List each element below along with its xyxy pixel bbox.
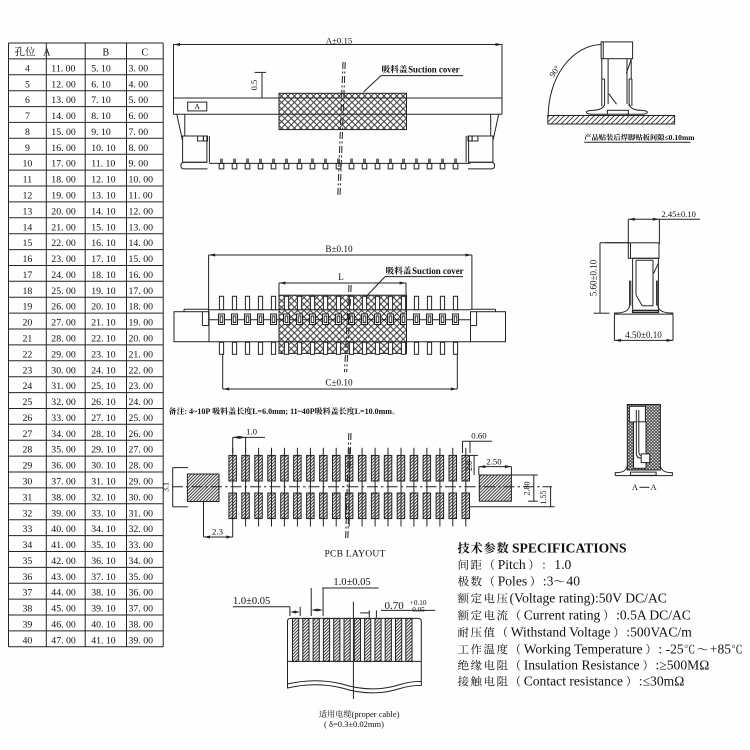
- svg-text:2.80: 2.80: [523, 482, 532, 496]
- svg-text:21. 00: 21. 00: [129, 349, 154, 360]
- svg-text:21. 00: 21. 00: [51, 222, 76, 233]
- svg-text:20: 20: [23, 318, 33, 329]
- svg-text:C: C: [141, 47, 148, 58]
- svg-text:38: 38: [23, 604, 33, 615]
- svg-text:5. 00: 5. 00: [129, 95, 149, 106]
- svg-text:32. 10: 32. 10: [91, 492, 116, 503]
- svg-text:5: 5: [25, 79, 30, 90]
- svg-text:46. 00: 46. 00: [51, 620, 76, 631]
- svg-text:11. 00: 11. 00: [129, 191, 153, 202]
- svg-text:30. 10: 30. 10: [91, 461, 116, 472]
- svg-text:25. 00: 25. 00: [51, 286, 76, 297]
- svg-text:10. 10: 10. 10: [91, 143, 116, 154]
- svg-text:32: 32: [23, 508, 33, 519]
- svg-text:15. 10: 15. 10: [91, 222, 116, 233]
- svg-text:10. 00: 10. 00: [129, 175, 154, 186]
- svg-text:33. 00: 33. 00: [129, 540, 154, 551]
- svg-text:1.55: 1.55: [539, 491, 548, 505]
- svg-text:22: 22: [23, 349, 33, 360]
- svg-text:10: 10: [23, 159, 33, 170]
- svg-text:40. 10: 40. 10: [91, 620, 116, 631]
- svg-text:9: 9: [25, 143, 30, 154]
- svg-text:32. 00: 32. 00: [129, 524, 154, 535]
- svg-text:27. 00: 27. 00: [51, 318, 76, 329]
- svg-text::500VAC/m: :500VAC/m: [626, 625, 692, 640]
- svg-text:34. 00: 34. 00: [51, 429, 76, 440]
- svg-text:6. 10: 6. 10: [91, 79, 111, 90]
- svg-text:2.50: 2.50: [486, 457, 502, 467]
- svg-text:31. 00: 31. 00: [129, 508, 154, 519]
- svg-text:38. 10: 38. 10: [91, 588, 116, 599]
- svg-text:30. 00: 30. 00: [129, 492, 154, 503]
- svg-text:28: 28: [23, 445, 33, 456]
- svg-text:27: 27: [23, 429, 33, 440]
- svg-text:12. 10: 12. 10: [91, 175, 116, 186]
- svg-text:7: 7: [25, 111, 30, 122]
- svg-text:35. 10: 35. 10: [91, 540, 116, 551]
- svg-text:41. 10: 41. 10: [91, 635, 116, 646]
- svg-text:5.60±0.10: 5.60±0.10: [589, 259, 599, 296]
- svg-text:22. 00: 22. 00: [51, 238, 76, 249]
- svg-text:Withstand Voltage: Withstand Voltage: [511, 625, 611, 640]
- svg-text:33: 33: [23, 524, 33, 535]
- svg-text:+85: +85: [710, 642, 731, 657]
- svg-text:15: 15: [23, 238, 33, 249]
- svg-text:29. 00: 29. 00: [51, 349, 76, 360]
- svg-text:7. 00: 7. 00: [129, 127, 149, 138]
- svg-text:14. 10: 14. 10: [91, 206, 116, 217]
- svg-text:12: 12: [23, 191, 33, 202]
- svg-text:4: 4: [25, 63, 30, 74]
- svg-text:16. 00: 16. 00: [51, 143, 76, 154]
- svg-text:19. 00: 19. 00: [51, 191, 76, 202]
- svg-text:Suction cover: Suction cover: [408, 64, 460, 74]
- svg-text:16. 00: 16. 00: [129, 270, 154, 281]
- svg-text:38. 00: 38. 00: [51, 492, 76, 503]
- svg-text:A: A: [632, 482, 639, 492]
- svg-text:Current rating: Current rating: [524, 608, 601, 623]
- svg-text:40. 00: 40. 00: [51, 524, 76, 535]
- svg-text:35. 00: 35. 00: [129, 572, 154, 583]
- svg-text:18. 00: 18. 00: [51, 175, 76, 186]
- svg-text:22. 10: 22. 10: [91, 334, 116, 345]
- svg-text:35. 00: 35. 00: [51, 445, 76, 456]
- svg-text:36: 36: [23, 572, 33, 583]
- svg-text:24. 00: 24. 00: [51, 270, 76, 281]
- svg-text:Working Temperature: Working Temperature: [524, 642, 643, 657]
- svg-text:15. 00: 15. 00: [51, 127, 76, 138]
- svg-text:11. 10: 11. 10: [91, 159, 115, 170]
- svg-text:18: 18: [23, 286, 33, 297]
- svg-text::≤30mΩ: :≤30mΩ: [639, 674, 685, 689]
- svg-text:38. 00: 38. 00: [129, 620, 154, 631]
- svg-text:24: 24: [23, 381, 33, 392]
- svg-text::3: :3: [543, 574, 554, 589]
- svg-text:34. 00: 34. 00: [129, 556, 154, 567]
- svg-text:18. 00: 18. 00: [129, 302, 154, 313]
- svg-text:40: 40: [23, 635, 33, 646]
- svg-text:11. 00: 11. 00: [51, 63, 75, 74]
- svg-text:36. 10: 36. 10: [91, 556, 116, 567]
- svg-text:30: 30: [23, 477, 33, 488]
- svg-text:8. 10: 8. 10: [91, 111, 111, 122]
- svg-text:40: 40: [566, 574, 580, 589]
- svg-text:19. 10: 19. 10: [91, 286, 116, 297]
- svg-text:33. 10: 33. 10: [91, 508, 116, 519]
- svg-text:SPECIFICATIONS: SPECIFICATIONS: [512, 541, 627, 556]
- svg-text:13. 00: 13. 00: [129, 222, 154, 233]
- svg-text:14. 00: 14. 00: [129, 238, 154, 249]
- svg-text:B±0.10: B±0.10: [325, 244, 353, 254]
- svg-text:16: 16: [23, 254, 33, 265]
- svg-text:34: 34: [23, 540, 33, 551]
- svg-text:43. 00: 43. 00: [51, 572, 76, 583]
- svg-text:13: 13: [23, 206, 33, 217]
- svg-text:39. 00: 39. 00: [129, 635, 154, 646]
- svg-text:25. 00: 25. 00: [129, 413, 154, 424]
- svg-text:39. 10: 39. 10: [91, 604, 116, 615]
- svg-text:31: 31: [23, 492, 33, 503]
- svg-text:22. 00: 22. 00: [129, 365, 154, 376]
- svg-text:: 4~10P: : 4~10P: [185, 407, 211, 416]
- svg-text:23. 00: 23. 00: [129, 381, 154, 392]
- svg-text:12. 00: 12. 00: [51, 79, 76, 90]
- svg-text:24. 00: 24. 00: [129, 397, 154, 408]
- svg-text:8. 00: 8. 00: [129, 143, 149, 154]
- svg-text:9. 00: 9. 00: [129, 159, 149, 170]
- svg-text:≤0.10mm: ≤0.10mm: [665, 133, 696, 142]
- svg-text:A: A: [43, 47, 51, 58]
- svg-text:32. 00: 32. 00: [51, 397, 76, 408]
- svg-text:11: 11: [23, 175, 33, 186]
- svg-text:30. 00: 30. 00: [51, 365, 76, 376]
- svg-text:16. 10: 16. 10: [91, 238, 116, 249]
- svg-text:4. 00: 4. 00: [129, 79, 149, 90]
- svg-text:Contact resistance: Contact resistance: [524, 674, 623, 689]
- svg-text:29: 29: [23, 461, 33, 472]
- svg-text:Pitch: Pitch: [498, 557, 526, 572]
- svg-text:17: 17: [23, 270, 33, 281]
- svg-text:29. 00: 29. 00: [129, 477, 154, 488]
- svg-text:37. 00: 37. 00: [51, 477, 76, 488]
- svg-text:39: 39: [23, 620, 33, 631]
- svg-text:17. 10: 17. 10: [91, 254, 116, 265]
- svg-text:18. 10: 18. 10: [91, 270, 116, 281]
- svg-text:26. 00: 26. 00: [51, 302, 76, 313]
- svg-text:2.0: 2.0: [465, 461, 474, 471]
- svg-text:3. 00: 3. 00: [129, 63, 149, 74]
- svg-text:8: 8: [25, 127, 30, 138]
- svg-text::≥500MΩ: :≥500MΩ: [656, 658, 710, 673]
- svg-text:28. 10: 28. 10: [91, 429, 116, 440]
- svg-text:1.0±0.05: 1.0±0.05: [233, 596, 270, 607]
- svg-text:36. 00: 36. 00: [51, 461, 76, 472]
- svg-text:20. 10: 20. 10: [91, 302, 116, 313]
- svg-text:21. 10: 21. 10: [91, 318, 116, 329]
- svg-text:A: A: [194, 102, 200, 111]
- svg-text:PCB LAYOUT: PCB LAYOUT: [324, 549, 385, 560]
- svg-text:6. 00: 6. 00: [129, 111, 149, 122]
- svg-text:31. 00: 31. 00: [51, 381, 76, 392]
- svg-text:42. 00: 42. 00: [51, 556, 76, 567]
- svg-text:31. 10: 31. 10: [91, 477, 116, 488]
- svg-text:20. 00: 20. 00: [129, 334, 154, 345]
- svg-text::0.5A DC/AC: :0.5A DC/AC: [616, 608, 691, 623]
- svg-text:26. 10: 26. 10: [91, 397, 116, 408]
- svg-text:28. 00: 28. 00: [129, 461, 154, 472]
- svg-text:41. 00: 41. 00: [51, 540, 76, 551]
- svg-text:23. 00: 23. 00: [51, 254, 76, 265]
- svg-text:1.0±0.05: 1.0±0.05: [333, 577, 370, 588]
- svg-text:6: 6: [25, 95, 30, 106]
- svg-text:1.0: 1.0: [554, 557, 571, 572]
- svg-text:17. 00: 17. 00: [51, 159, 76, 170]
- svg-text:(Voltage rating):50V DC/AC: (Voltage rating):50V DC/AC: [510, 591, 667, 607]
- svg-text:36. 00: 36. 00: [129, 588, 154, 599]
- svg-text:26. 00: 26. 00: [129, 429, 154, 440]
- svg-text:14: 14: [23, 222, 33, 233]
- svg-text:13. 00: 13. 00: [51, 95, 76, 106]
- svg-text:2.3: 2.3: [212, 527, 224, 537]
- svg-text:12. 00: 12. 00: [129, 206, 154, 217]
- svg-text:20. 00: 20. 00: [51, 206, 76, 217]
- svg-text:L=6.0mm; 11~40P: L=6.0mm; 11~40P: [252, 407, 315, 416]
- svg-text:1.0: 1.0: [246, 427, 258, 437]
- svg-text:A: A: [651, 482, 658, 492]
- svg-text:5. 10: 5. 10: [91, 63, 111, 74]
- svg-text:9. 10: 9. 10: [91, 127, 111, 138]
- svg-text:L=10.0mm: L=10.0mm: [355, 407, 393, 416]
- svg-text:37: 37: [23, 588, 33, 599]
- svg-text:37. 10: 37. 10: [91, 572, 116, 583]
- svg-text:C±0.10: C±0.10: [325, 378, 353, 388]
- svg-text:17. 00: 17. 00: [129, 286, 154, 297]
- svg-text:27. 10: 27. 10: [91, 413, 116, 424]
- svg-text:Poles: Poles: [498, 574, 527, 589]
- svg-text:33. 00: 33. 00: [51, 413, 76, 424]
- svg-text:( δ=0.3±0.02mm): ( δ=0.3±0.02mm): [324, 719, 384, 729]
- svg-text:Insulation Resistance: Insulation Resistance: [524, 658, 640, 673]
- svg-text:4.50±0.10: 4.50±0.10: [625, 330, 662, 340]
- svg-text:24. 10: 24. 10: [91, 365, 116, 376]
- svg-text:: -25: : -25: [658, 642, 683, 657]
- svg-text:25. 10: 25. 10: [91, 381, 116, 392]
- svg-text:27. 00: 27. 00: [129, 445, 154, 456]
- svg-text:34. 10: 34. 10: [91, 524, 116, 535]
- svg-text:13. 10: 13. 10: [91, 191, 116, 202]
- svg-text:45. 00: 45. 00: [51, 604, 76, 615]
- svg-text:L: L: [338, 272, 344, 282]
- svg-text:0.5: 0.5: [249, 80, 259, 91]
- svg-text:47. 00: 47. 00: [51, 635, 76, 646]
- svg-text:25: 25: [23, 397, 33, 408]
- svg-text:44. 00: 44. 00: [51, 588, 76, 599]
- svg-text:35: 35: [23, 556, 33, 567]
- svg-text:28. 00: 28. 00: [51, 334, 76, 345]
- svg-text:26: 26: [23, 413, 33, 424]
- svg-text:15. 00: 15. 00: [129, 254, 154, 265]
- svg-text:7. 10: 7. 10: [91, 95, 111, 106]
- svg-text:(proper cable): (proper cable): [352, 709, 400, 719]
- svg-text:Suction cover: Suction cover: [412, 266, 464, 276]
- svg-text:29. 10: 29. 10: [91, 445, 116, 456]
- svg-text:21: 21: [23, 334, 33, 345]
- svg-text:19. 00: 19. 00: [129, 318, 154, 329]
- svg-text:23. 10: 23. 10: [91, 349, 116, 360]
- svg-text:B: B: [102, 47, 109, 58]
- svg-text:39. 00: 39. 00: [51, 508, 76, 519]
- svg-text:0.60: 0.60: [471, 431, 487, 441]
- svg-text:3.1: 3.1: [162, 482, 171, 492]
- svg-text:2.45±0.10: 2.45±0.10: [662, 209, 696, 219]
- svg-text:14. 00: 14. 00: [51, 111, 76, 122]
- svg-text:37. 00: 37. 00: [129, 604, 154, 615]
- svg-text:23: 23: [23, 365, 33, 376]
- svg-text:19: 19: [23, 302, 33, 313]
